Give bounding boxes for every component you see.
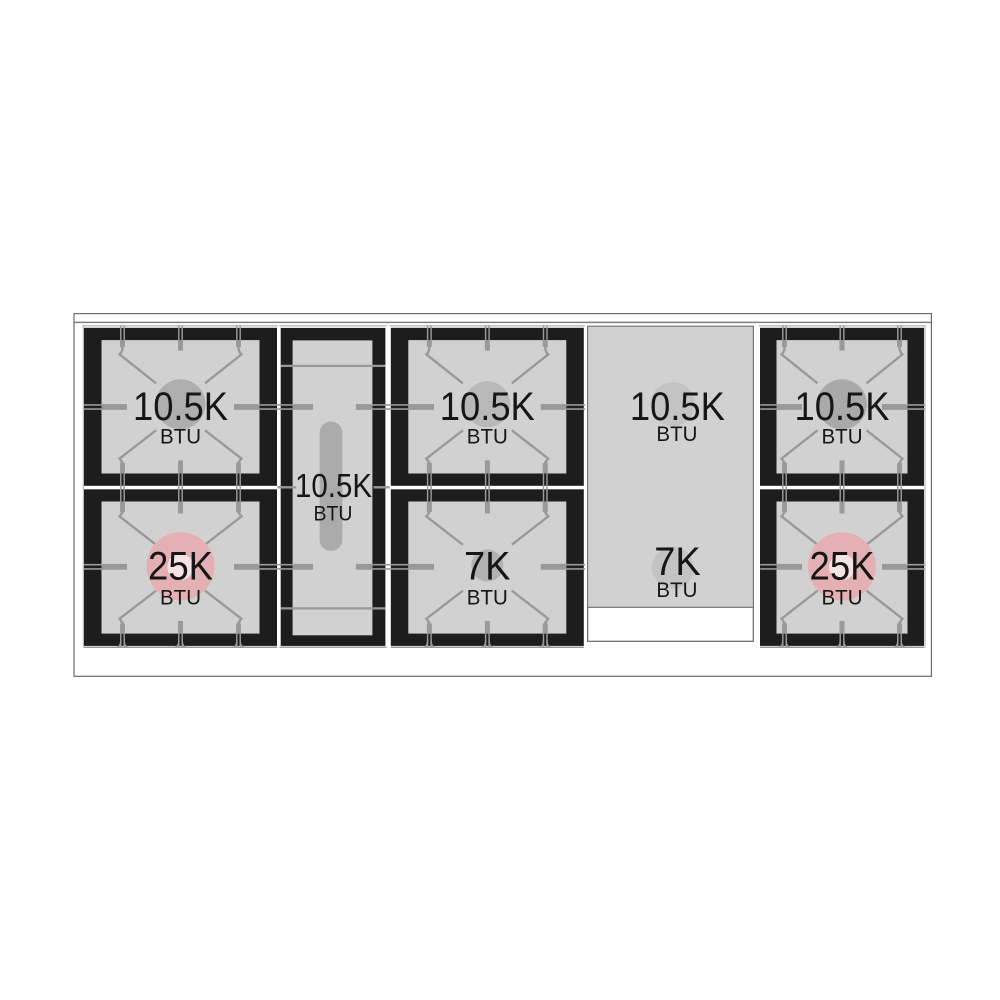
svg-text:BTU: BTU	[656, 423, 697, 446]
svg-text:BTU: BTU	[822, 425, 863, 448]
svg-text:10.5K: 10.5K	[133, 385, 228, 429]
svg-text:BTU: BTU	[656, 579, 697, 602]
svg-text:BTU: BTU	[822, 586, 863, 609]
svg-text:BTU: BTU	[314, 503, 353, 526]
svg-text:7K: 7K	[654, 540, 701, 584]
svg-text:BTU: BTU	[467, 425, 508, 448]
svg-text:BTU: BTU	[160, 586, 201, 609]
svg-text:10.5K: 10.5K	[295, 467, 372, 504]
svg-text:BTU: BTU	[467, 586, 508, 609]
svg-text:BTU: BTU	[160, 425, 201, 448]
svg-text:25K: 25K	[810, 545, 875, 589]
svg-text:10.5K: 10.5K	[440, 385, 535, 429]
svg-text:10.5K: 10.5K	[795, 385, 890, 429]
svg-text:25K: 25K	[148, 545, 213, 589]
svg-text:7K: 7K	[464, 545, 511, 589]
